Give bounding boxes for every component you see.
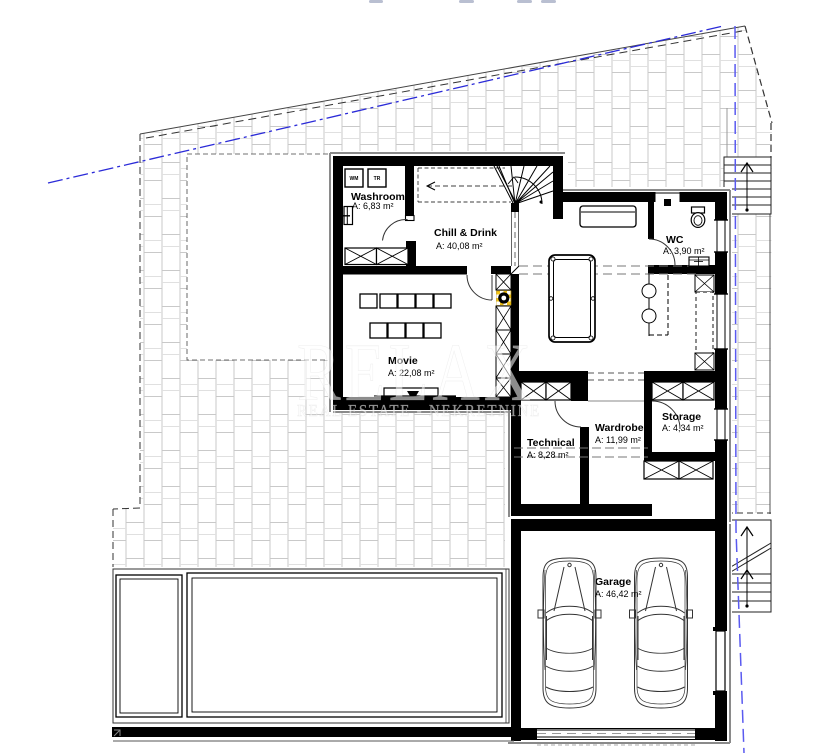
svg-text:A: 8,28 m²: A: 8,28 m² xyxy=(527,450,569,460)
svg-text:REAL ESTATE - NEKRETNINE: REAL ESTATE - NEKRETNINE xyxy=(297,401,541,420)
svg-text:WM: WM xyxy=(350,176,359,182)
svg-text:Wardrobe: Wardrobe xyxy=(595,422,644,434)
svg-text:TR: TR xyxy=(374,176,381,182)
svg-text:A: 3,90 m²: A: 3,90 m² xyxy=(663,246,705,256)
svg-text:A: 4,34 m²: A: 4,34 m² xyxy=(662,423,704,433)
svg-text:A: 11,99 m²: A: 11,99 m² xyxy=(595,435,641,445)
svg-text:Chill & Drink: Chill & Drink xyxy=(434,227,497,239)
svg-text:WC: WC xyxy=(666,234,684,246)
svg-text:A: 46,42 m²: A: 46,42 m² xyxy=(595,589,642,599)
svg-text:Garage: Garage xyxy=(595,576,631,588)
svg-text:A: 6,83 m²: A: 6,83 m² xyxy=(352,201,394,211)
svg-text:Storage: Storage xyxy=(662,411,701,423)
svg-text:Technical: Technical xyxy=(527,437,575,449)
svg-text:A: 40,08 m²: A: 40,08 m² xyxy=(436,241,483,251)
